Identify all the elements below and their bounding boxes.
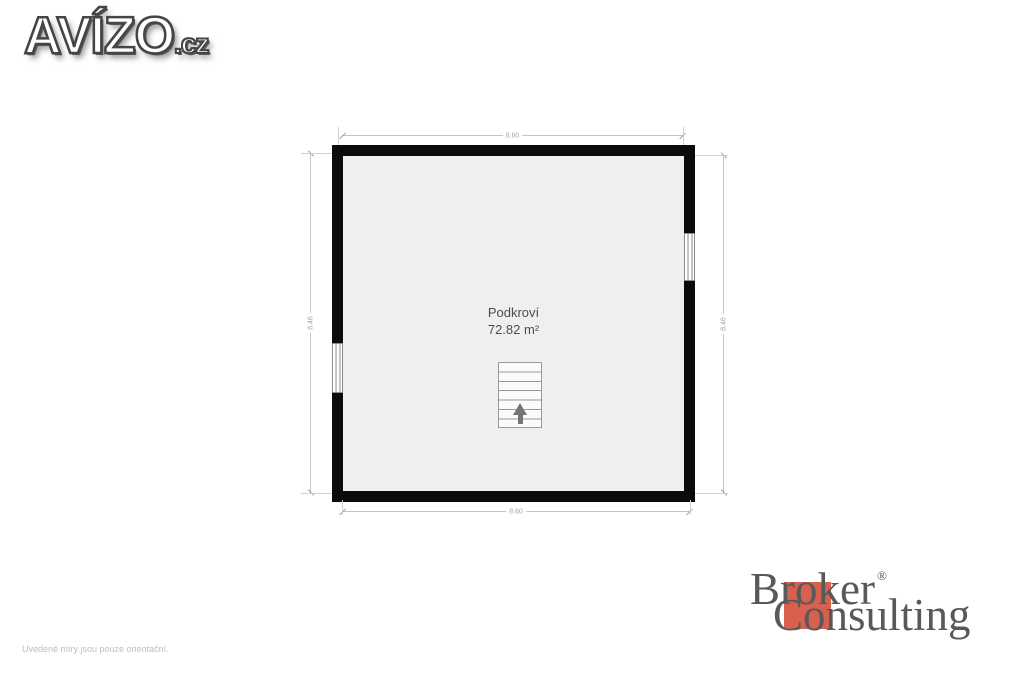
disclaimer-text: Uvedené míry jsou pouze orientační. <box>22 644 169 654</box>
avizo-logo-text: AVÍZO <box>24 7 174 65</box>
room-area: 72.82 m² <box>343 321 684 338</box>
extension-line <box>683 127 684 145</box>
broker-consulting-logo: Broker® Consulting <box>748 576 1008 668</box>
floorplan-room-podkrovi: Podkroví 72.82 m² <box>332 145 695 502</box>
dimension-top: 8.60 <box>342 135 683 136</box>
arrow-up-icon <box>513 403 527 424</box>
extension-line <box>690 500 691 515</box>
extension-line <box>301 153 332 154</box>
extension-line <box>695 155 728 156</box>
window-symbol-right <box>684 233 695 281</box>
floorplan-page: { "site_logo": { "text": "AVÍZO", "suffi… <box>0 0 1024 683</box>
dimension-bottom: 8.60 <box>342 511 690 512</box>
dimension-left: 8.46 <box>310 153 311 493</box>
dimension-top-label: 8.60 <box>503 133 523 140</box>
extension-line <box>301 493 332 494</box>
window-symbol-left <box>332 343 343 393</box>
avizo-logo: AVÍZO.cz <box>24 6 208 66</box>
dimension-bottom-label: 8.60 <box>506 509 526 516</box>
dimension-right-label: 8.46 <box>721 314 728 334</box>
registered-trademark-icon: ® <box>877 568 887 583</box>
room-name: Podkroví <box>343 304 684 321</box>
stairs-up-icon <box>498 362 542 428</box>
extension-line <box>695 493 728 494</box>
room-label: Podkroví 72.82 m² <box>343 304 684 338</box>
extension-line <box>338 127 339 145</box>
extension-line <box>342 500 343 515</box>
dimension-left-label: 8.46 <box>308 313 315 333</box>
broker-logo-line2: Consulting <box>773 590 971 642</box>
dimension-right: 8.46 <box>723 155 724 493</box>
avizo-logo-suffix: .cz <box>174 28 208 59</box>
